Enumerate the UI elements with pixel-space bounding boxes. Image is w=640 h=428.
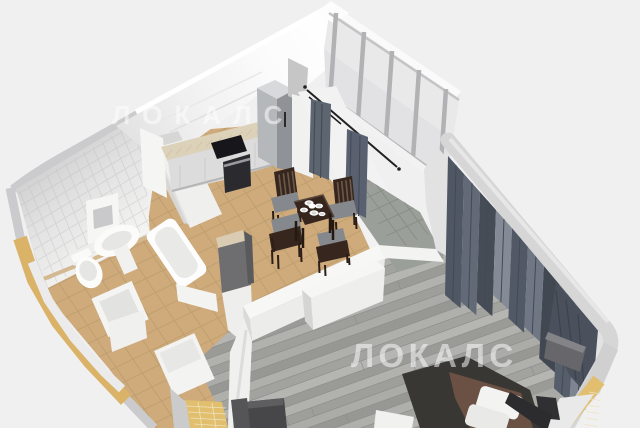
svg-text:ЛОКАЛС: ЛОКАЛС bbox=[351, 337, 518, 374]
svg-text:ЛОКАЛС: ЛОКАЛС bbox=[112, 100, 294, 130]
